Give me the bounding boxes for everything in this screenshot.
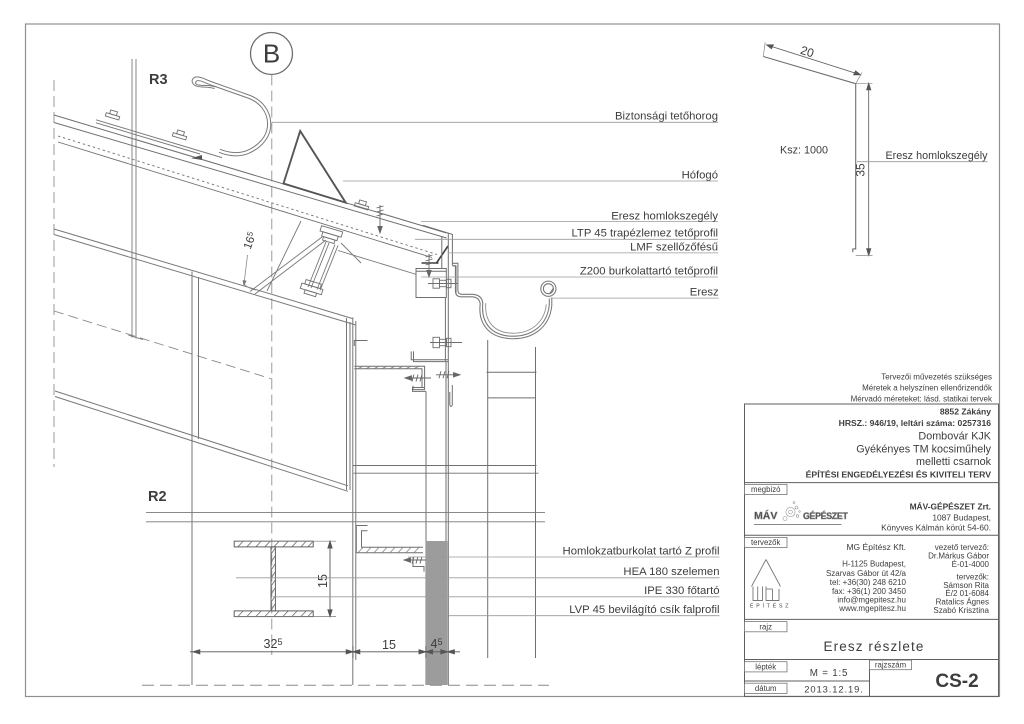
- svg-text:Eresz: Eresz: [690, 287, 719, 299]
- svg-text:LVP 45 bevilágító csík falprof: LVP 45 bevilágító csík falprofil: [569, 604, 719, 616]
- svg-text:2013.12.19.: 2013.12.19.: [804, 683, 863, 694]
- svg-text:ÉPÍTÉSZ: ÉPÍTÉSZ: [750, 603, 791, 610]
- svg-text:É-01-4000: É-01-4000: [952, 560, 990, 569]
- svg-text:20: 20: [799, 43, 816, 60]
- svg-text:MÁV-GÉPÉSZET Zrt.: MÁV-GÉPÉSZET Zrt.: [910, 501, 991, 512]
- svg-text:Szabó Krisztina: Szabó Krisztina: [933, 606, 989, 615]
- svg-text:Eresz homlokszegély: Eresz homlokszegély: [611, 211, 718, 223]
- svg-text:1087 Budapest,: 1087 Budapest,: [932, 513, 991, 523]
- svg-text:HRSZ.: 946/19, leltári száma:: HRSZ.: 946/19, leltári száma: 0257316: [839, 418, 992, 428]
- svg-text:IPE 330 főtartó: IPE 330 főtartó: [644, 585, 719, 597]
- svg-text:rajz: rajz: [759, 622, 772, 631]
- svg-text:R2: R2: [148, 489, 167, 505]
- svg-text:B: B: [263, 39, 280, 69]
- svg-text:M = 1:5: M = 1:5: [810, 668, 849, 679]
- svg-text:Hófogó: Hófogó: [682, 169, 718, 181]
- svg-text:GÉPÉSZET: GÉPÉSZET: [803, 511, 848, 521]
- svg-text:35: 35: [854, 163, 868, 177]
- svg-text:MG Építész Kft.: MG Építész Kft.: [846, 542, 906, 552]
- svg-text:rajzszám: rajzszám: [875, 661, 906, 670]
- svg-text:H-1125 Budapest,: H-1125 Budapest,: [842, 560, 906, 569]
- svg-text:Méretek a helyszínen ellenőriz: Méretek a helyszínen ellenőrizendők: [862, 384, 993, 393]
- svg-text:Homlokzatburkolat tartó Z prof: Homlokzatburkolat tartó Z profil: [563, 545, 720, 557]
- svg-text:Szarvas Gábor út 42/a: Szarvas Gábor út 42/a: [826, 569, 907, 578]
- svg-text:R3: R3: [149, 72, 168, 88]
- svg-text:Z200 burkolattartó tetőprofil: Z200 burkolattartó tetőprofil: [580, 265, 718, 277]
- svg-text:Könyves Kálmán körút 54-60.: Könyves Kálmán körút 54-60.: [881, 523, 991, 533]
- svg-text:Mérvadó méreteket: lásd. stati: Mérvadó méreteket: lásd. statikai tervek: [851, 395, 993, 404]
- svg-text:Ksz: 1000: Ksz: 1000: [780, 145, 828, 157]
- svg-text:tervezők: tervezők: [751, 538, 781, 547]
- svg-text:Biztonsági tetőhorog: Biztonsági tetőhorog: [615, 111, 718, 123]
- svg-text:lépték: lépték: [755, 663, 776, 672]
- svg-text:MÁV: MÁV: [754, 509, 777, 522]
- svg-text:melletti csarnok: melletti csarnok: [916, 456, 992, 468]
- svg-text:Tervezői művezetés szükséges: Tervezői művezetés szükséges: [881, 373, 992, 382]
- svg-text:15: 15: [382, 638, 396, 652]
- svg-text:325: 325: [264, 637, 283, 651]
- svg-text:dátum: dátum: [755, 684, 777, 693]
- svg-text:Gyékényes TM kocsiműhely: Gyékényes TM kocsiműhely: [856, 443, 991, 455]
- svg-text:CS-2: CS-2: [935, 671, 978, 692]
- svg-text:ÉPÍTÉSI ENGEDÉLYEZÉSI ÉS KIVIT: ÉPÍTÉSI ENGEDÉLYEZÉSI ÉS KIVITELI TERV: [806, 470, 992, 480]
- svg-text:LTP 45 trapézlemez tetőprofil: LTP 45 trapézlemez tetőprofil: [571, 228, 718, 240]
- svg-text:Eresz részlete: Eresz részlete: [824, 639, 925, 654]
- svg-text:15: 15: [316, 574, 330, 588]
- svg-text:LMF szellőzőfésű: LMF szellőzőfésű: [630, 241, 718, 253]
- svg-text:tel: +36(30) 248 6210: tel: +36(30) 248 6210: [830, 578, 907, 587]
- svg-text:165: 165: [241, 230, 259, 251]
- svg-text:HEA 180 szelemen: HEA 180 szelemen: [623, 566, 719, 578]
- svg-text:megbizó: megbizó: [751, 485, 781, 494]
- svg-text:Dombovár KJK: Dombovár KJK: [918, 430, 991, 442]
- svg-text:8852 Zákány: 8852 Zákány: [940, 407, 991, 417]
- svg-text:www.mgepitesz.hu: www.mgepitesz.hu: [838, 604, 906, 613]
- svg-text:Eresz homlokszegély: Eresz homlokszegély: [885, 150, 988, 162]
